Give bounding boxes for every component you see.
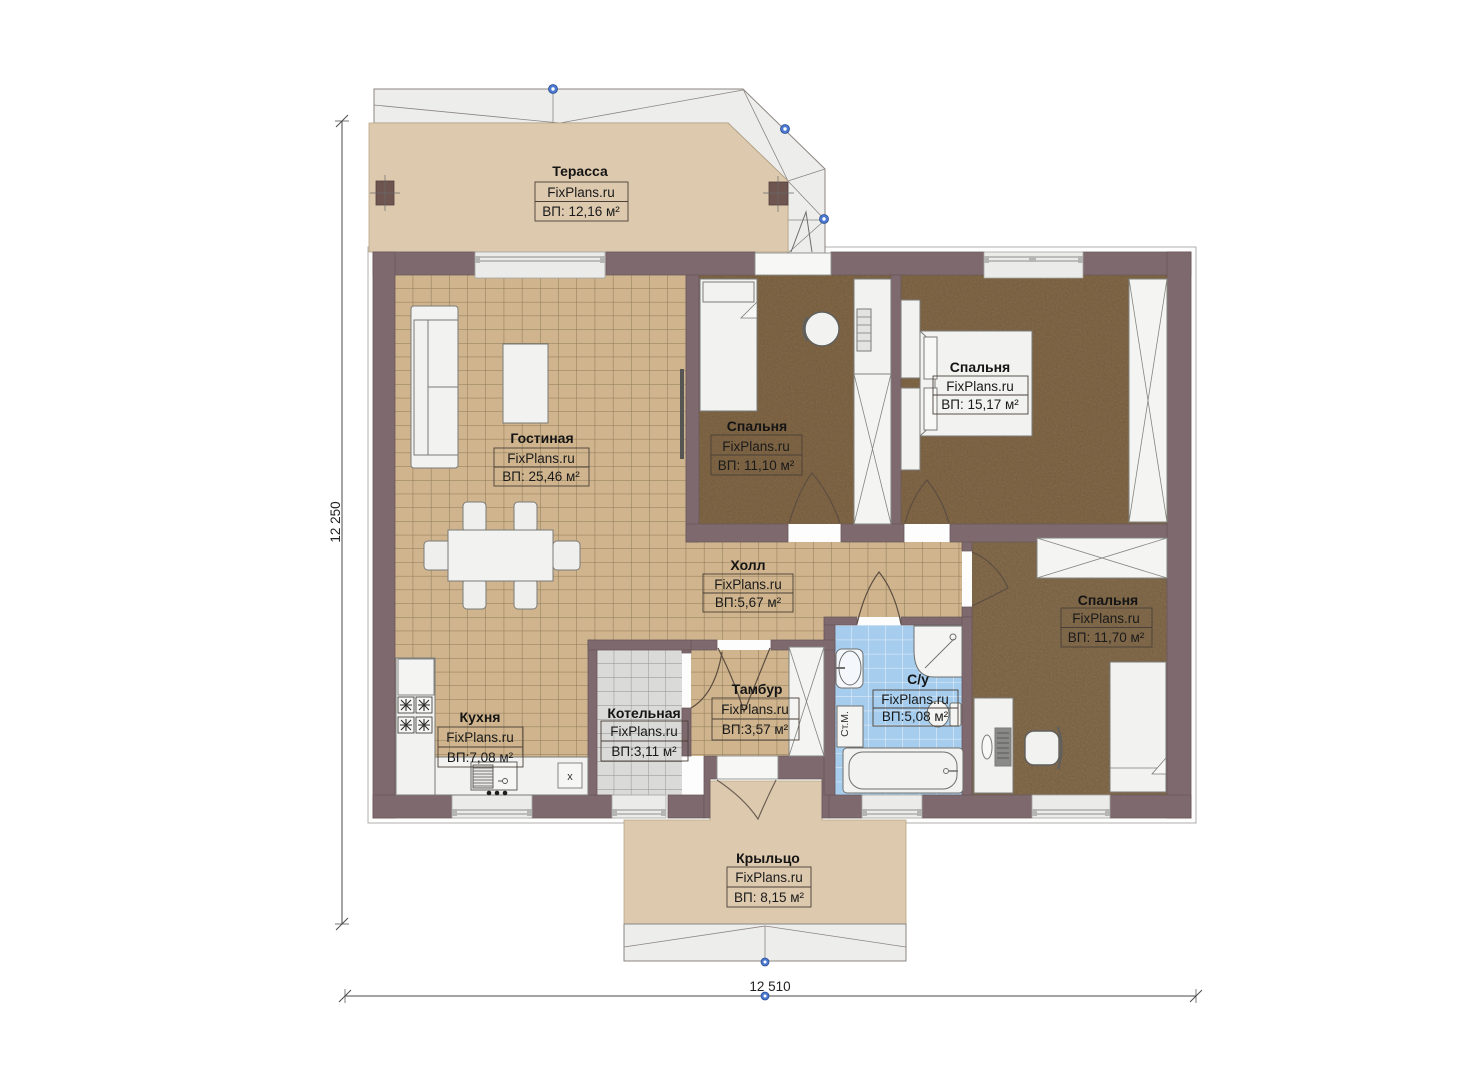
svg-text:FixPlans.ru: FixPlans.ru (946, 379, 1014, 394)
svg-text:Спальня: Спальня (1078, 592, 1138, 608)
svg-text:FixPlans.ru: FixPlans.ru (881, 692, 949, 707)
svg-text:FixPlans.ru: FixPlans.ru (714, 577, 782, 592)
svg-text:ВП: 15,17 м²: ВП: 15,17 м² (941, 397, 1019, 412)
svg-text:ВП:5,67 м²: ВП:5,67 м² (715, 595, 782, 610)
svg-text:Гостиная: Гостиная (510, 430, 573, 446)
svg-text:FixPlans.ru: FixPlans.ru (507, 451, 575, 466)
svg-text:ВП:5,08 м²: ВП:5,08 м² (882, 709, 949, 724)
svg-text:FixPlans.ru: FixPlans.ru (1072, 611, 1140, 626)
svg-text:x: x (567, 771, 573, 783)
svg-text:Терасса: Терасса (552, 163, 608, 179)
svg-text:ВП:7,08 м²: ВП:7,08 м² (447, 750, 514, 765)
svg-text:ВП: 25,46 м²: ВП: 25,46 м² (502, 469, 580, 484)
svg-text:ВП:3,57 м²: ВП:3,57 м² (722, 722, 789, 737)
svg-text:12 510: 12 510 (749, 979, 790, 994)
svg-text:ВП: 12,16 м²: ВП: 12,16 м² (542, 204, 620, 219)
svg-text:ВП: 11,70 м²: ВП: 11,70 м² (1068, 630, 1145, 645)
svg-text:FixPlans.ru: FixPlans.ru (610, 724, 678, 739)
svg-text:Холл: Холл (730, 557, 765, 573)
svg-text:Спальня: Спальня (950, 359, 1010, 375)
svg-text:12 250: 12 250 (328, 501, 343, 542)
svg-text:Кухня: Кухня (460, 709, 501, 725)
svg-text:С/у: С/у (907, 671, 929, 687)
svg-text:FixPlans.ru: FixPlans.ru (446, 730, 514, 745)
svg-text:Тамбур: Тамбур (732, 681, 783, 697)
svg-text:ВП: 11,10 м²: ВП: 11,10 м² (718, 458, 795, 473)
svg-text:Котельная: Котельная (607, 705, 680, 721)
svg-text:Спальня: Спальня (727, 418, 787, 434)
svg-text:ВП: 8,15 м²: ВП: 8,15 м² (734, 890, 805, 905)
svg-text:Ст.М.: Ст.М. (839, 711, 851, 737)
svg-text:ВП:3,11 м²: ВП:3,11 м² (611, 744, 677, 759)
svg-text:FixPlans.ru: FixPlans.ru (547, 185, 615, 200)
svg-text:Крыльцо: Крыльцо (736, 850, 800, 866)
svg-text:FixPlans.ru: FixPlans.ru (722, 439, 790, 454)
svg-text:FixPlans.ru: FixPlans.ru (721, 702, 789, 717)
svg-text:FixPlans.ru: FixPlans.ru (735, 870, 803, 885)
